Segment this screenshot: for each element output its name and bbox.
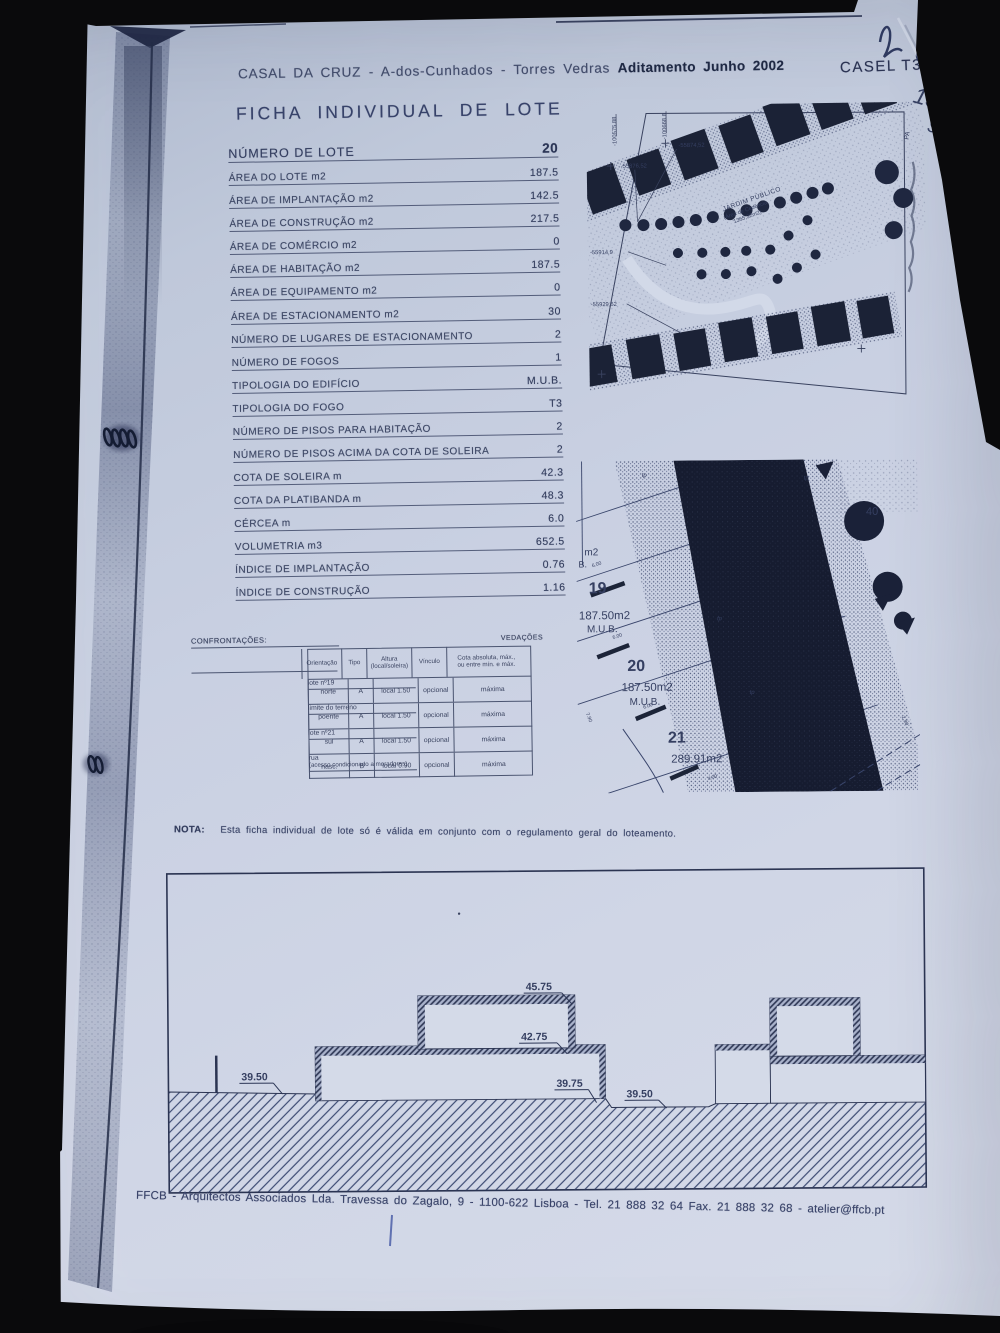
cell-vinculo: opcional [418,678,453,703]
field-row: NÚMERO DE PISOS ACIMA DA COTA DE SOLEIRA… [233,436,563,463]
field-value: 0 [554,282,561,295]
field-value: 0 [553,236,560,249]
field-row: COTA DA PLATIBANDA m 48.3 [234,482,564,509]
field-row: TIPOLOGIA DO EDIFÍCIO M.U.B. [232,367,562,394]
field-label: ÁREA DE EQUIPAMENTO m2 [230,286,377,300]
coord-label: -55874,52 [678,143,704,149]
field-value: 187.5 [530,167,559,180]
coord-label: -55876,52 [621,164,647,170]
field-label: VOLUMETRIA m3 [235,541,323,554]
field-row: CÉRCEA m 6.0 [234,506,564,533]
col-cota-line2: ou entre mín. e máx. [447,661,525,670]
vedacoes-title: VEDAÇÕES [501,634,543,642]
side-name: limite do terreno [308,704,357,712]
stray-mark [458,912,460,914]
col-orientacao: Orientação [301,648,341,679]
col-altura: Altura (local/soleira) [366,647,411,678]
level-top: 45.75 [526,981,553,993]
field-label: ÁREA DE HABITAÇÃO m2 [230,263,360,277]
field-label: ÁREA DO LOTE m2 [229,171,327,185]
lot-detail-map: m2 B. 19 187.50m2 M.U.B. 20 187.50m2 M.U… [576,459,921,794]
field-value: 142.5 [530,190,559,203]
field-value: 1.16 [543,582,566,595]
field-label: ÍNDICE DE CONSTRUÇÃO [235,586,370,600]
field-label: NÚMERO DE LUGARES DE ESTACIONAMENTO [231,331,473,347]
site-plan-map: JARDIM PÚBLICO (Área de Cedência 1365,32… [586,102,928,407]
cell-vinculo: opcional [418,728,453,753]
field-row: ÁREA DE COMÉRCIO m2 0 [230,229,560,256]
field-row: ÁREA DE HABITAÇÃO m2 187.5 [230,252,560,279]
field-value: 30 [548,305,561,318]
lot21-area: 289.91m2 [671,753,722,765]
dim-790: 7.90 [584,712,593,723]
confrontacao-row: lote nº19 norte A local 1.50 opcional má… [308,676,532,704]
field-value: 2 [555,328,562,341]
tp-label: tp [804,475,810,481]
tp-label: tp [642,473,648,479]
lot19-type: M.U.B. [587,624,618,635]
field-row: ÁREA DE EQUIPAMENTO m2 0 [230,275,560,302]
field-row: ÍNDICE DE IMPLANTAÇÃO 0.76 [235,552,565,579]
field-label: TIPOLOGIA DO EDIFÍCIO [232,379,360,393]
side-name: lote nº19 [308,679,335,686]
field-label: ÁREA DE CONSTRUÇÃO m2 [229,217,374,231]
cell-cota: máxima [454,752,533,777]
field-row: TIPOLOGIA DO FOGO T3 [232,390,562,417]
field-row: ÁREA DE IMPLANTAÇÃO m2 142.5 [229,182,559,209]
confrontacao-row: rua (acesso condicionado a moradores) na… [309,751,533,779]
field-row: VOLUMETRIA m3 652.5 [235,529,565,556]
confrontacao-row: lote nº21 sul A local 1.50 opcional máxi… [308,726,532,754]
field-label: COTA DE SOLEIRA m [234,471,343,485]
field-label: ÁREA DE IMPLANTAÇÃO m2 [229,194,374,208]
field-row: NÚMERO DE LUGARES DE ESTACIONAMENTO 2 [231,321,561,348]
level-ground-mid: 39.75 [556,1078,583,1090]
photographed-document: CASAL DA CRUZ - A-dos-Cunhados - Torres … [0,0,1000,1333]
field-row: ÁREA DE ESTACIONAMENTO m2 30 [231,298,561,325]
level-middle: 42.75 [521,1031,548,1043]
field-value: M.U.B. [527,374,562,388]
field-value: 6.0 [548,513,564,526]
row-side-label: rua (acesso condicionado a moradores) [309,753,423,769]
coord-label: -100575.88 [612,117,618,146]
cell-vinculo: opcional [418,703,453,728]
urbanization-blocks: JARDIM PÚBLICO (Área de Cedência 1365,32… [586,102,928,407]
col-vinculo: Vínculo [411,647,446,678]
field-row: ÁREA DE CONSTRUÇÃO m2 217.5 [229,206,559,233]
confrontacao-row: limite do terreno poente A local 1.50 op… [308,701,532,729]
field-label: TIPOLOGIA DO FOGO [232,402,344,416]
side-name: lote nº21 [308,729,335,736]
right-building [715,997,926,1104]
field-value: 187.5 [531,259,560,272]
coord-label: -55914,9 [590,250,613,256]
lot19-number: 19 [589,580,607,597]
cell-cota: máxima [453,677,532,702]
lot19-area: 187.50m2 [579,610,630,622]
field-value: 217.5 [530,213,559,226]
field-label: NÚMERO DE PISOS ACIMA DA COTA DE SOLEIRA [233,446,489,462]
field-value: 2 [556,420,563,433]
confrontacoes-title: CONFRONTAÇÕES: [191,634,339,648]
field-row: NÚMERO DE PISOS PARA HABITAÇÃO 2 [233,413,563,440]
field-row: ÍNDICE DE CONSTRUÇÃO 1.16 [235,575,565,602]
cell-vinculo: opcional [419,753,454,778]
coord-label: -100668.8 [662,113,668,139]
field-label: ÁREA DE COMÉRCIO m2 [230,240,357,254]
col-altura-line2: (local/soleira) [367,662,411,670]
fp-label: fp [717,616,723,622]
field-row: ÁREA DO LOTE m2 187.5 [228,159,558,186]
confrontacoes-table: CONFRONTAÇÕES: VEDAÇÕES Orientação Tipo … [189,627,547,784]
field-row: COTA DE SOLEIRA m 42.3 [233,459,563,486]
field-label: COTA DA PLATIBANDA m [234,494,362,508]
field-value: 0.76 [543,559,566,572]
field-value: 1 [555,351,562,364]
nota-label: NOTA: [174,824,205,835]
tp-label: tp [750,690,756,696]
field-value: 2 [557,444,564,457]
lot20-number: 20 [627,658,645,675]
col-cota: Cota absoluta, máx., ou entre mín. e máx… [446,646,525,677]
field-label: NÚMERO DE PISOS PARA HABITAÇÃO [233,424,431,439]
field-label: NÚMERO DE FOGOS [232,356,340,370]
partial-area-label: m2 [584,547,598,558]
lot-fields-list: NÚMERO DE LOTE 20 ÁREA DO LOTE m2 187.5 … [228,134,566,604]
corner-number: 40 [866,506,878,518]
lot20-area: 187.50m2 [621,682,672,694]
cell-cota: máxima [453,702,532,727]
field-value: 652.5 [536,536,565,549]
elevation-drawing: 45.75 42.75 39.50 39.75 39.50 [162,860,931,1196]
addendum-label: Aditamento Junho 2002 [618,58,785,76]
field-label: NÚMERO DE LOTE [228,145,355,162]
lot21-number: 21 [668,730,686,747]
field-value: 48.3 [541,490,564,503]
field-value: 20 [542,141,558,157]
field-label: ÍNDICE DE IMPLANTAÇÃO [235,563,370,577]
col-tipo: Tipo [341,648,366,678]
field-row: NÚMERO DE LOTE 20 [228,134,558,163]
partial-type-label: B. [578,559,587,569]
field-value: T3 [549,397,562,410]
field-row: NÚMERO DE FOGOS 1 [231,344,561,371]
level-ground-left: 39.50 [241,1071,268,1083]
coord-label: -55929,62 [591,302,617,308]
field-label: ÁREA DE ESTACIONAMENTO m2 [231,309,399,324]
field-label: CÉRCEA m [234,518,290,531]
cell-cota: máxima [453,727,532,752]
field-value: 42.3 [541,467,564,480]
dim-600: 6.00 [591,560,602,569]
level-ground-right: 39.50 [626,1088,653,1100]
reference-code: CASEL T3 [840,57,923,77]
